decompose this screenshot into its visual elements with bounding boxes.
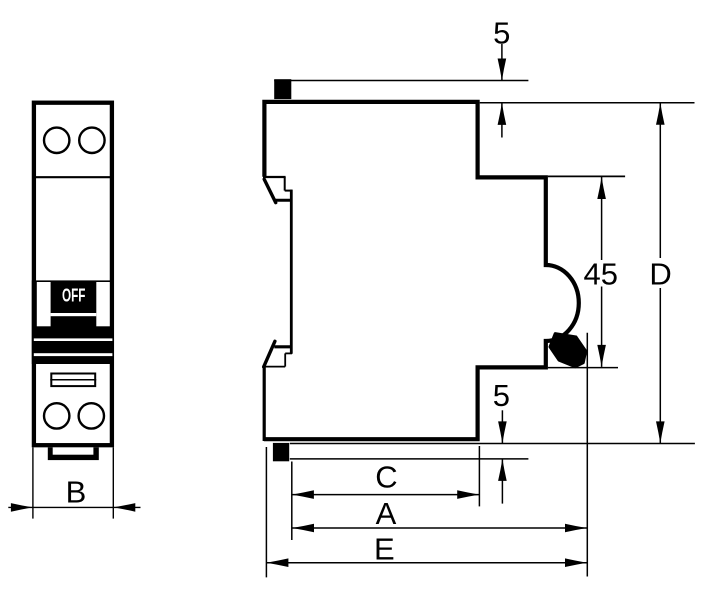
svg-text:C: C (375, 460, 397, 495)
svg-text:OFF: OFF (62, 286, 85, 306)
svg-text:D: D (649, 256, 671, 291)
svg-text:5: 5 (493, 16, 510, 51)
svg-text:B: B (66, 474, 87, 509)
svg-text:E: E (374, 531, 395, 566)
svg-text:5: 5 (493, 378, 510, 413)
svg-text:A: A (376, 496, 397, 531)
svg-text:45: 45 (584, 257, 618, 292)
